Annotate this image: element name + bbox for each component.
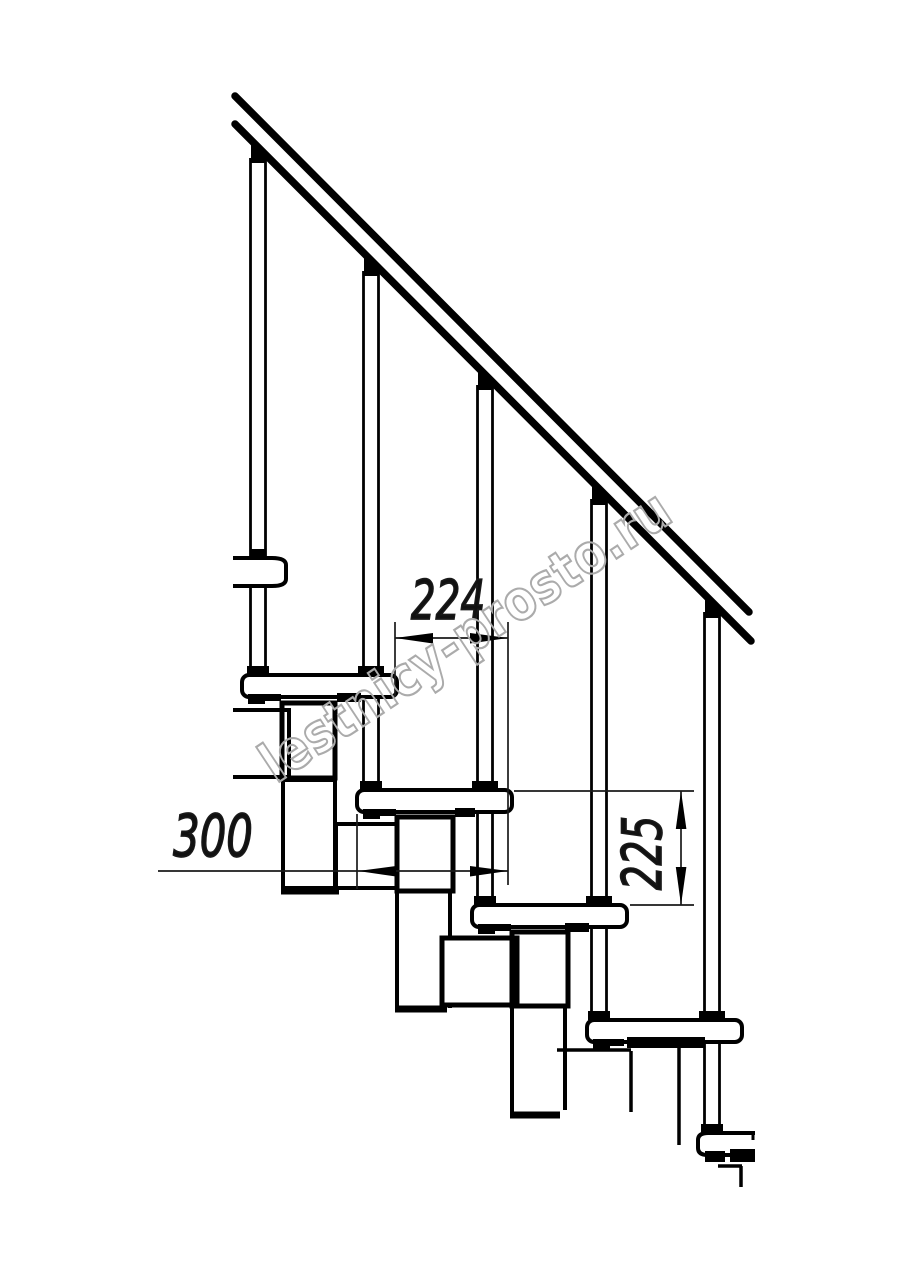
tread-3 [472, 905, 627, 927]
clamp [472, 781, 498, 790]
module-bracket-3 [442, 938, 517, 1005]
tab [593, 1039, 610, 1049]
baluster-1 [251, 158, 266, 669]
tab [455, 808, 475, 817]
foot [588, 1011, 610, 1020]
arrowhead-up [676, 791, 687, 829]
tab [565, 923, 589, 932]
clamp [699, 1011, 725, 1020]
tab [705, 1151, 725, 1162]
arrowhead-right [470, 866, 508, 877]
foot [247, 666, 269, 675]
tread-0-partial [233, 558, 286, 586]
watermark-text: lestnicy-prosto.ru [248, 477, 683, 795]
tab [495, 924, 511, 931]
staircase-technical-drawing: 224 300 225 lestnicy-prosto.ru [0, 0, 914, 1280]
dimension-225: 225 [514, 791, 694, 905]
tread-2 [357, 790, 512, 812]
fittings [247, 144, 755, 1162]
arrowhead-down [676, 867, 687, 905]
tab [730, 1149, 755, 1162]
module-bracket-2 [336, 824, 397, 888]
module-column-3-upper [512, 932, 568, 1006]
arrowhead-left [358, 866, 396, 877]
tab [380, 809, 396, 816]
tab [265, 694, 281, 701]
module-column-2-upper [397, 817, 453, 891]
tab [363, 809, 380, 819]
dimension-label-225: 225 [612, 816, 675, 890]
baluster-5 [705, 612, 720, 1127]
drawing-svg: 224 300 225 lestnicy-prosto.ru [0, 0, 914, 1280]
tab [248, 694, 265, 704]
foot [474, 896, 496, 905]
tab [610, 1039, 624, 1046]
dimension-label-300: 300 [173, 802, 253, 870]
clamp [251, 549, 265, 558]
tab [627, 1037, 705, 1048]
tab [478, 924, 495, 934]
clamp [586, 896, 612, 905]
foot [701, 1124, 723, 1133]
foot [360, 781, 382, 790]
